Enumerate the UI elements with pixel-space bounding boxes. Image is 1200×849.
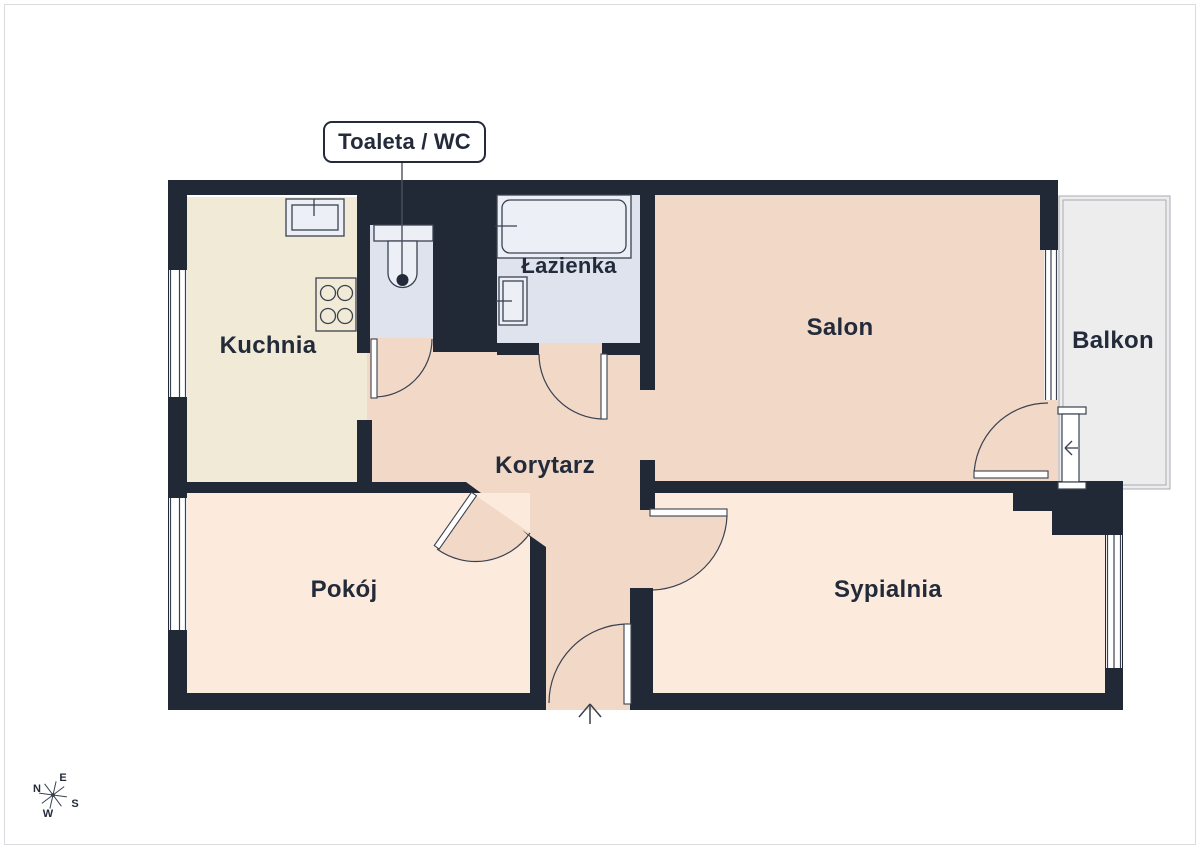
floor-kuchnia-doorgap xyxy=(355,353,367,421)
kitchen-sink-icon xyxy=(286,199,344,236)
wall-lazienka-salon xyxy=(640,190,655,390)
toilet-tank xyxy=(374,225,433,241)
compass-label-w: W xyxy=(43,808,54,820)
sypialnia-window xyxy=(1106,535,1122,668)
wall-pokoj-top xyxy=(168,482,466,493)
compass-label-n: N xyxy=(33,783,41,795)
wall-pokoj-entrance xyxy=(530,548,546,693)
callout-leader-dot xyxy=(397,274,409,286)
toilet-callout-box: Toaleta / WC xyxy=(323,121,486,163)
compass-label-e: E xyxy=(59,772,66,784)
wall-lazienka-bottom-right xyxy=(602,343,640,355)
wall-korytarz-salon-stub xyxy=(640,460,655,510)
radiator-cap-top xyxy=(1058,407,1086,414)
wall-salon-balkon-upper xyxy=(1040,180,1058,250)
room-label-balkon: Balkon xyxy=(1072,327,1154,355)
bathtub-icon xyxy=(495,195,631,258)
wall-sypialnia-top-step xyxy=(1013,493,1123,511)
window-glass xyxy=(169,498,187,630)
kitchen-window xyxy=(169,270,187,397)
compass-center xyxy=(51,793,55,797)
room-label-korytarz: Korytarz xyxy=(495,452,595,480)
wall-bottom-left xyxy=(168,693,546,710)
compass-rose-icon: N E S W xyxy=(33,772,79,820)
door-leaf xyxy=(650,509,727,516)
wall-kuchnia-right-lower xyxy=(357,420,372,483)
wall-bottom-right xyxy=(630,693,1123,710)
wall-lazienka-bottom-left xyxy=(497,343,539,355)
radiator-cap-bottom xyxy=(1058,482,1086,489)
bathroom-sink-icon xyxy=(496,277,527,325)
room-label-pokoj: Pokój xyxy=(311,576,378,604)
door-leaf xyxy=(371,339,377,398)
room-label-kuchnia: Kuchnia xyxy=(220,332,317,360)
wall-toaleta-top xyxy=(357,180,497,225)
wall-toaleta-lazienka xyxy=(433,225,497,352)
room-label-salon: Salon xyxy=(807,314,874,342)
salon-balkon-window xyxy=(1044,250,1058,400)
door-leaf xyxy=(624,624,631,704)
door-leaf xyxy=(974,471,1048,478)
wall-left xyxy=(168,180,187,710)
floorplan-drawing: N E S W xyxy=(0,0,1200,849)
door-leaf xyxy=(601,354,607,419)
bathtub-outer xyxy=(497,195,631,258)
wall-sypialnia-top-right xyxy=(1052,511,1123,535)
floorplan-page: { "callout": { "label": "Toaleta / WC" }… xyxy=(0,0,1200,849)
pokoj-window xyxy=(169,498,187,630)
compass-label-s: S xyxy=(71,798,78,810)
wall-top xyxy=(168,180,1058,195)
toilet-callout-label: Toaleta / WC xyxy=(338,129,471,155)
wall-entrance-sypialnia xyxy=(630,588,653,693)
window-glass xyxy=(169,270,187,397)
wall-salon-sypialnia xyxy=(653,481,1123,493)
room-label-sypialnia: Sypialnia xyxy=(834,576,942,604)
room-label-lazienka: Łazienka xyxy=(521,253,616,279)
